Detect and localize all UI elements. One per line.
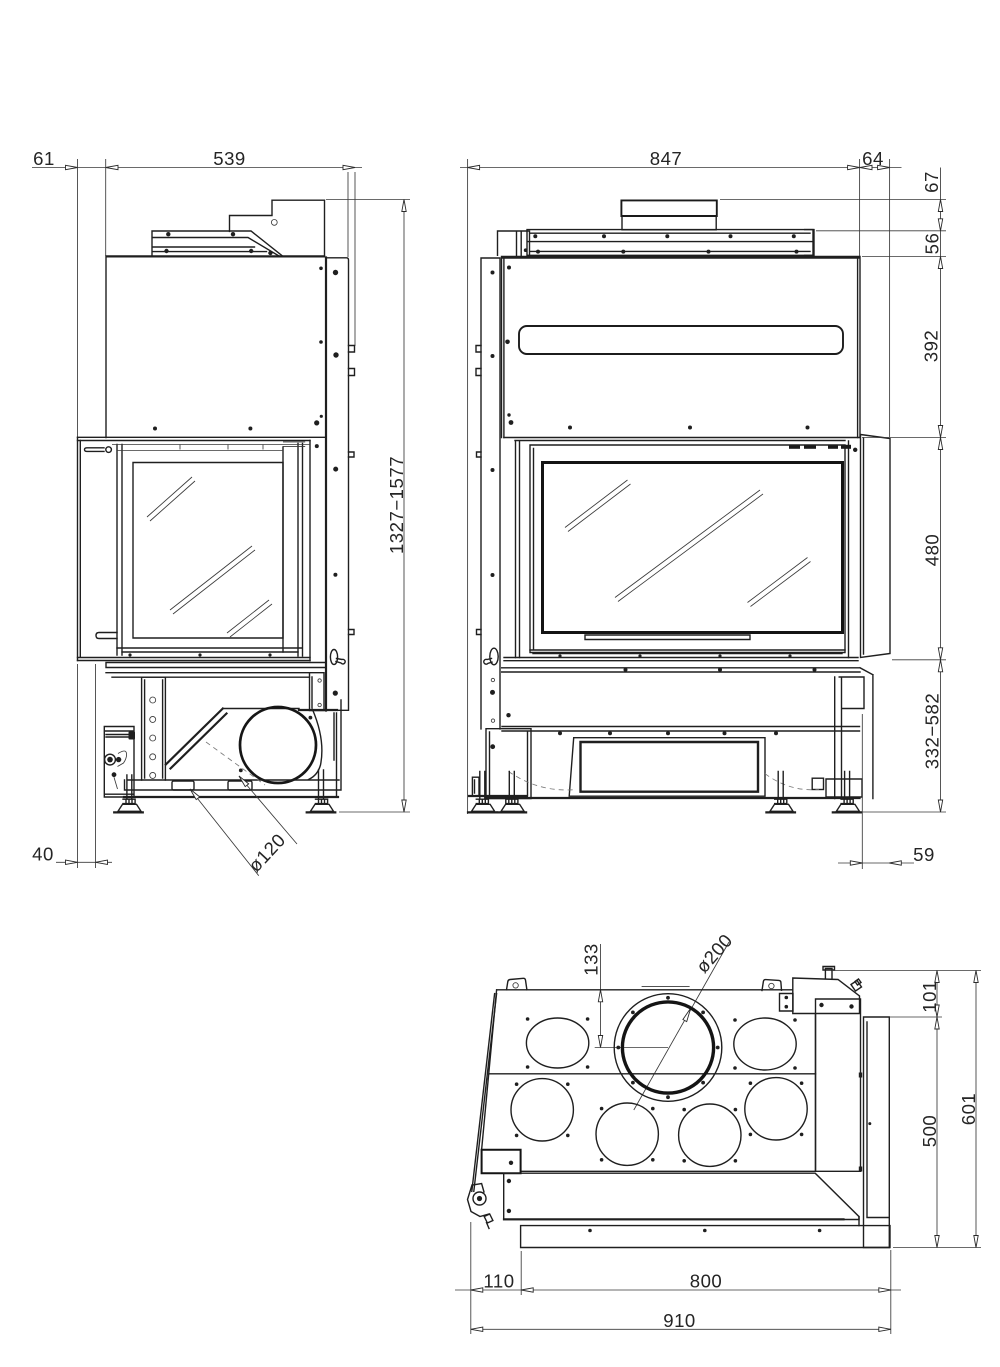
- svg-text:1327−1577: 1327−1577: [386, 456, 407, 554]
- svg-text:61: 61: [33, 148, 55, 169]
- svg-text:601: 601: [958, 1093, 979, 1126]
- svg-text:101: 101: [919, 980, 940, 1013]
- svg-text:480: 480: [922, 534, 943, 567]
- svg-text:133: 133: [581, 943, 602, 976]
- svg-text:847: 847: [650, 148, 683, 169]
- svg-text:110: 110: [483, 1271, 514, 1292]
- svg-text:392: 392: [921, 330, 942, 363]
- svg-text:800: 800: [690, 1271, 723, 1292]
- svg-text:40: 40: [32, 843, 54, 864]
- svg-text:539: 539: [213, 148, 246, 169]
- svg-text:67: 67: [921, 171, 942, 193]
- svg-text:332−582: 332−582: [922, 693, 943, 769]
- svg-text:59: 59: [913, 844, 935, 865]
- svg-text:910: 910: [663, 1310, 696, 1331]
- svg-text:500: 500: [919, 1115, 940, 1148]
- svg-text:56: 56: [922, 233, 943, 255]
